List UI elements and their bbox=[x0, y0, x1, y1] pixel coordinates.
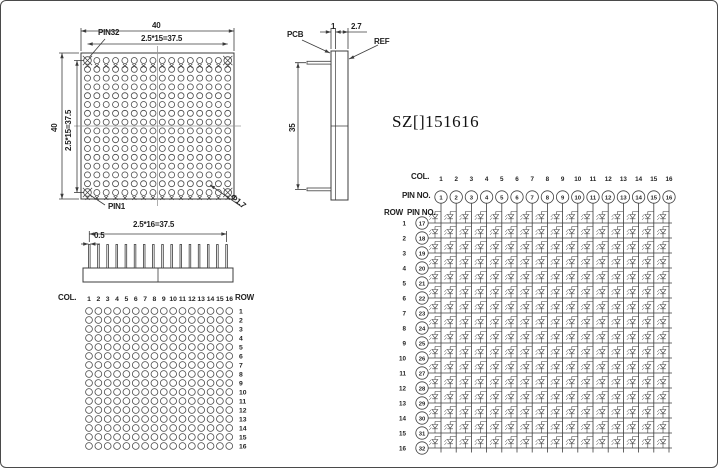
schematic-row-number: 6 bbox=[402, 295, 406, 302]
schematic-col-pin-number: 15 bbox=[651, 195, 658, 201]
schematic-row-pin-number: 20 bbox=[419, 266, 426, 272]
schematic-col-pin-number: 11 bbox=[590, 195, 597, 201]
schematic-col-pin-number: 7 bbox=[531, 195, 535, 201]
dotmap-row-number: 16 bbox=[239, 443, 247, 450]
schematic-row-number: 16 bbox=[399, 445, 407, 452]
schematic-row-number: 14 bbox=[399, 415, 407, 422]
side-dim-height: 35 bbox=[289, 124, 297, 133]
dotmap-row-number: 6 bbox=[239, 353, 243, 360]
dotmap-row-number: 2 bbox=[239, 317, 243, 324]
schematic-row-number: 5 bbox=[402, 280, 406, 287]
schematic-row-pin-number: 31 bbox=[419, 431, 426, 437]
schematic-row-pin-number: 21 bbox=[419, 281, 426, 287]
dotmap-row-number: 14 bbox=[239, 425, 247, 432]
schematic-row-number: 7 bbox=[402, 310, 406, 317]
schematic-col-number: 7 bbox=[530, 176, 534, 183]
schematic-col-number: 2 bbox=[454, 176, 458, 183]
front-dim-width: 40 bbox=[152, 22, 161, 30]
schematic-row-pin-number: 17 bbox=[419, 221, 426, 227]
dot-map-view: 1234567891011121314151612345678910111213… bbox=[86, 296, 247, 450]
dotmap-row-number: 9 bbox=[239, 380, 243, 387]
dotmap-row-number: 7 bbox=[239, 362, 243, 369]
schematic-row-pin-number: 23 bbox=[419, 311, 426, 317]
schematic-col-label: COL. bbox=[411, 173, 429, 181]
schematic-col-pin-number: 2 bbox=[455, 195, 459, 201]
schematic-col-pin-number: 14 bbox=[635, 195, 642, 201]
schematic-col-number: 15 bbox=[650, 176, 658, 183]
dotmap-col-number: 11 bbox=[179, 296, 186, 303]
dotmap-col-number: 1 bbox=[87, 296, 91, 303]
dotmap-col-number: 8 bbox=[153, 296, 157, 303]
dotmap-row-number: 11 bbox=[239, 398, 246, 405]
schematic-col-number: 6 bbox=[515, 176, 519, 183]
dotmap-col-number: 7 bbox=[143, 296, 147, 303]
schematic-row-pin-number: 29 bbox=[419, 401, 426, 407]
schematic-col-number: 4 bbox=[485, 176, 489, 183]
dotmap-row-number: 1 bbox=[239, 308, 243, 315]
dotmap-col-number: 10 bbox=[169, 296, 177, 303]
schematic-row-pin-number: 22 bbox=[419, 296, 426, 302]
schematic-col-number: 8 bbox=[546, 176, 550, 183]
front-dim-height: 40 bbox=[51, 124, 59, 133]
dotmap-col-number: 16 bbox=[225, 296, 233, 303]
schematic-row-number: 2 bbox=[402, 235, 406, 242]
dotmap-col-number: 6 bbox=[134, 296, 138, 303]
schematic-row-pin-number: 18 bbox=[419, 236, 426, 242]
dotmap-row-number: 15 bbox=[239, 434, 247, 441]
pin1-label: PIN1 bbox=[108, 203, 125, 211]
ref-label: REF bbox=[374, 38, 389, 46]
schematic-col-pin-number: 13 bbox=[620, 195, 627, 201]
schematic-row-pin-number: 24 bbox=[419, 326, 426, 332]
schematic-row-number: 10 bbox=[399, 355, 407, 362]
schematic-row-pin-number: 28 bbox=[419, 386, 426, 392]
dotmap-col-number: 4 bbox=[115, 296, 119, 303]
schematic: 1122334455667788991010111112121313141415… bbox=[399, 176, 675, 454]
schematic-col-pin-number: 4 bbox=[485, 195, 489, 201]
part-number-title: SZ[]151616 bbox=[392, 112, 479, 132]
dotmap-row-number: 12 bbox=[239, 407, 247, 414]
dotmap-row-number: 5 bbox=[239, 344, 243, 351]
dotmap-row-label: ROW bbox=[235, 294, 254, 302]
schematic-row-number: 4 bbox=[402, 265, 406, 272]
pcb-label: PCB bbox=[287, 31, 303, 39]
schematic-col-number: 11 bbox=[590, 176, 597, 183]
schematic-row-number: 15 bbox=[399, 430, 407, 437]
schematic-col-pin-number: 1 bbox=[439, 195, 443, 201]
schematic-col-number: 5 bbox=[500, 176, 504, 183]
schematic-row-number: 3 bbox=[402, 250, 406, 257]
schematic-col-pin-number: 3 bbox=[470, 195, 474, 201]
dotmap-row-number: 13 bbox=[239, 416, 247, 423]
side-view bbox=[295, 28, 378, 200]
dotmap-row-number: 4 bbox=[239, 335, 243, 342]
schematic-row-pin-number: 26 bbox=[419, 356, 426, 362]
schematic-row-pin-label: PIN NO. bbox=[407, 209, 435, 217]
schematic-col-number: 14 bbox=[635, 176, 643, 183]
dotmap-col-number: 13 bbox=[197, 296, 205, 303]
schematic-row-number: 1 bbox=[402, 220, 406, 227]
dotmap-row-number: 10 bbox=[239, 389, 247, 396]
schematic-col-pin-number: 9 bbox=[561, 195, 565, 201]
schematic-col-number: 16 bbox=[665, 176, 673, 183]
schematic-row-number: 8 bbox=[402, 325, 406, 332]
pin32-label: PIN32 bbox=[98, 29, 119, 37]
schematic-row-number: 12 bbox=[399, 385, 407, 392]
schematic-col-pin-number: 10 bbox=[575, 195, 582, 201]
schematic-col-pin-number: 5 bbox=[500, 195, 504, 201]
side-dim-thickness: 1 bbox=[331, 23, 335, 31]
schematic-col-number: 10 bbox=[574, 176, 582, 183]
dotmap-col-number: 3 bbox=[106, 296, 110, 303]
schematic-row-number: 13 bbox=[399, 400, 407, 407]
dotmap-col-number: 5 bbox=[125, 296, 129, 303]
front-dim-pitch-v: 2.5*15=37.5 bbox=[65, 110, 73, 151]
front-view bbox=[59, 28, 242, 207]
pinview-dim-pin-width: 0.5 bbox=[94, 232, 105, 240]
pinview-dim-pitch: 2.5*16=37.5 bbox=[133, 221, 174, 229]
dotmap-col-label: COL. bbox=[58, 294, 76, 302]
dotmap-col-number: 15 bbox=[216, 296, 224, 303]
schematic-col-number: 9 bbox=[561, 176, 565, 183]
schematic-row-label: ROW bbox=[384, 209, 403, 217]
dotmap-col-number: 12 bbox=[188, 296, 196, 303]
drawing-sheet: 1234567891011121314151612345678910111213… bbox=[0, 0, 718, 468]
schematic-col-pin-number: 6 bbox=[515, 195, 519, 201]
schematic-row-pin-number: 32 bbox=[419, 446, 426, 452]
drawing-canvas: 1234567891011121314151612345678910111213… bbox=[1, 1, 718, 468]
dotmap-row-number: 3 bbox=[239, 326, 243, 333]
schematic-col-pin-number: 16 bbox=[666, 195, 673, 201]
schematic-col-number: 1 bbox=[439, 176, 443, 183]
schematic-row-number: 9 bbox=[402, 340, 406, 347]
front-dim-pitch-h: 2.5*15=37.5 bbox=[141, 35, 182, 43]
dotmap-col-number: 14 bbox=[207, 296, 215, 303]
schematic-col-number: 3 bbox=[470, 176, 474, 183]
schematic-col-pin-number: 8 bbox=[546, 195, 550, 201]
schematic-col-pin-label: PIN NO. bbox=[402, 192, 430, 200]
dotmap-col-number: 9 bbox=[162, 296, 166, 303]
schematic-col-number: 12 bbox=[605, 176, 613, 183]
schematic-col-number: 13 bbox=[620, 176, 628, 183]
schematic-row-pin-number: 19 bbox=[419, 251, 426, 257]
side-dim-total: 2.7 bbox=[351, 23, 362, 31]
dotmap-col-number: 2 bbox=[96, 296, 100, 303]
schematic-col-pin-number: 12 bbox=[605, 195, 612, 201]
schematic-led-grid bbox=[429, 212, 669, 449]
dotmap-row-number: 8 bbox=[239, 371, 243, 378]
schematic-row-pin-number: 30 bbox=[419, 416, 426, 422]
schematic-row-pin-number: 25 bbox=[419, 341, 426, 347]
schematic-row-number: 11 bbox=[399, 370, 406, 377]
schematic-row-pin-number: 27 bbox=[419, 371, 426, 377]
